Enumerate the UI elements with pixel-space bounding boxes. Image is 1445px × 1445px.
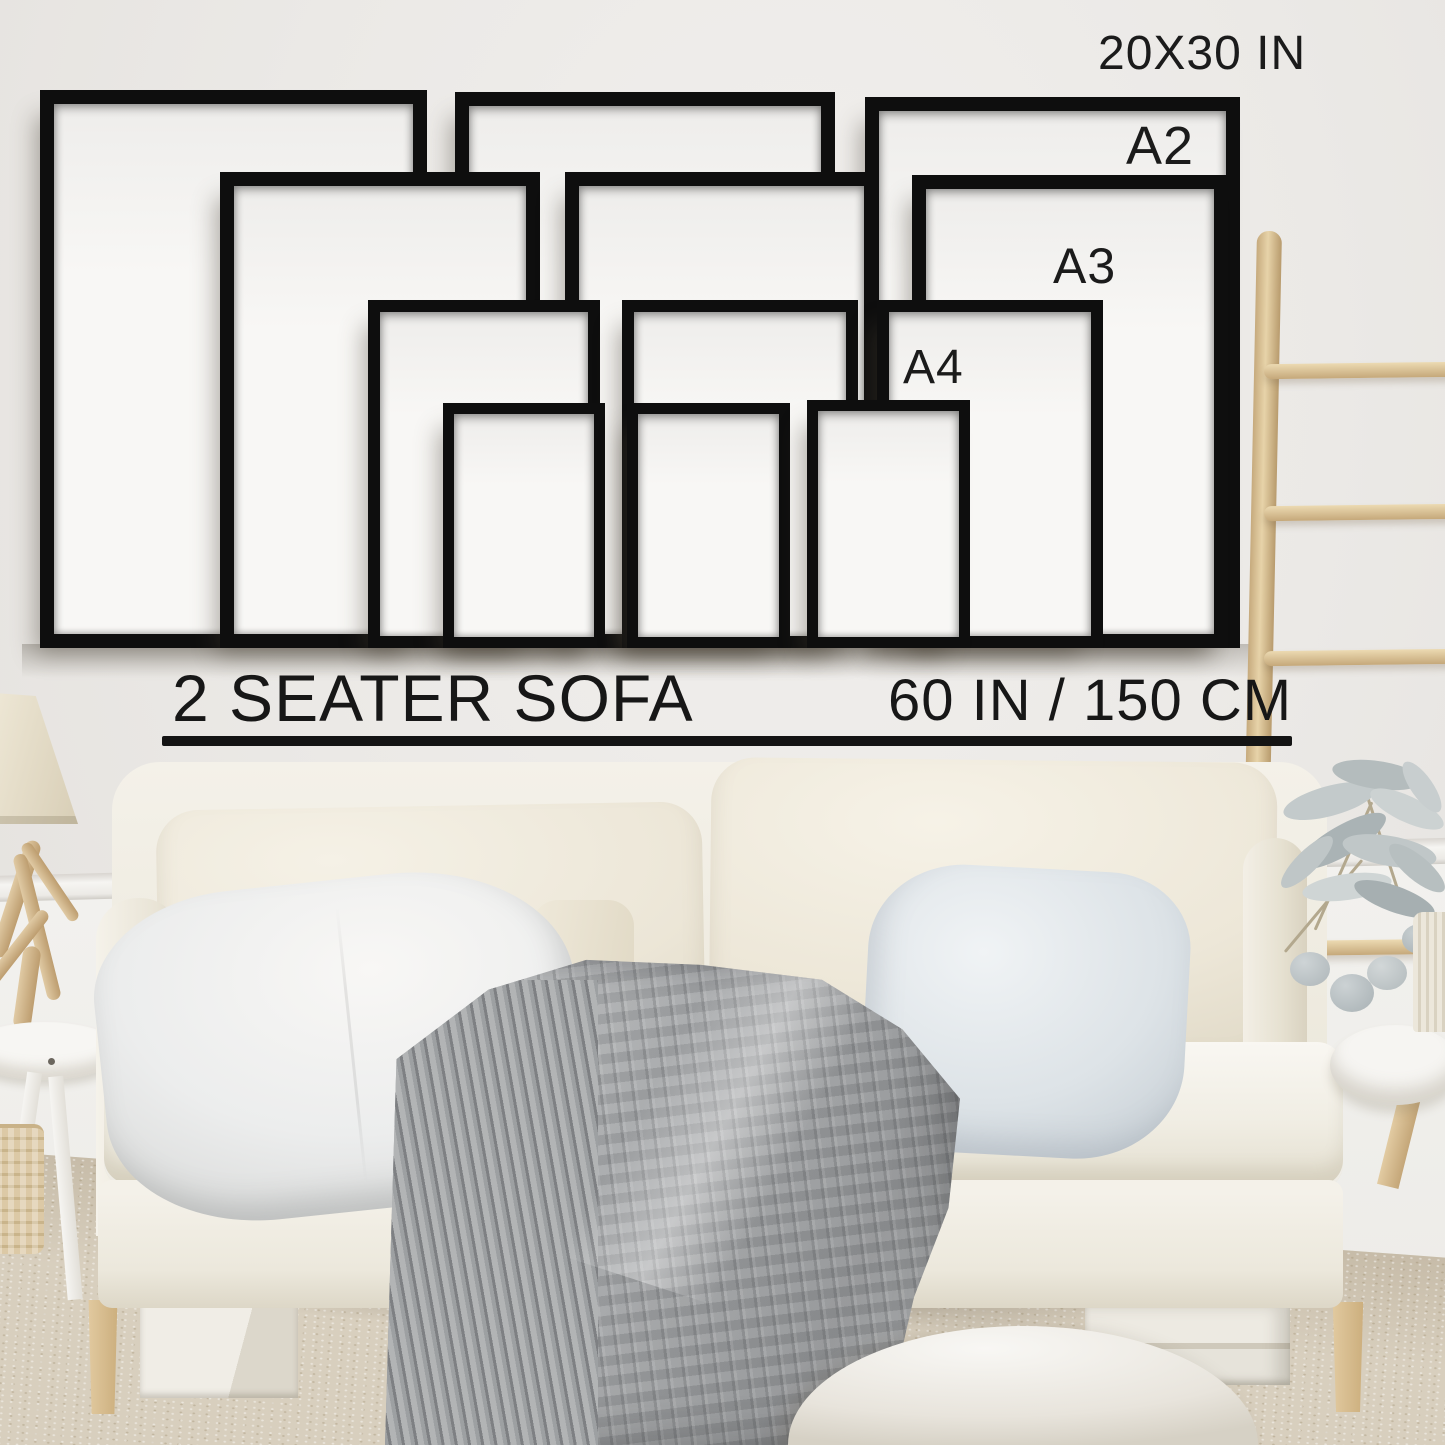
frame-a4-center [627,403,790,648]
size-label-a3: A3 [1053,241,1116,291]
size-label-a2: A2 [1126,119,1194,173]
ribbed-vase [1413,912,1445,1032]
sofa-width-label: 60 IN / 150 CM [888,672,1292,730]
driftwood-sculpture [0,836,90,1036]
frame-a4-left [443,403,605,648]
lamp-shade [0,692,78,824]
ladder-rung [1264,649,1445,666]
size-guide-room-scene: 20X30 IN A2 A3 A4 2 SEATER SOFA 60 IN / … [0,0,1445,1445]
ladder-rung [1264,504,1445,521]
size-label-20x30: 20X30 IN [1098,30,1306,78]
woven-basket [0,1124,44,1254]
frame-a4-right [807,400,970,648]
size-label-a4: A4 [903,344,964,392]
table-screw-detail [48,1058,55,1065]
ladder-rung [1264,362,1445,379]
sofa-width-measure-line [162,736,1292,746]
storage-box-left [140,1302,298,1398]
sofa-reference-label: 2 SEATER SOFA [172,665,694,731]
